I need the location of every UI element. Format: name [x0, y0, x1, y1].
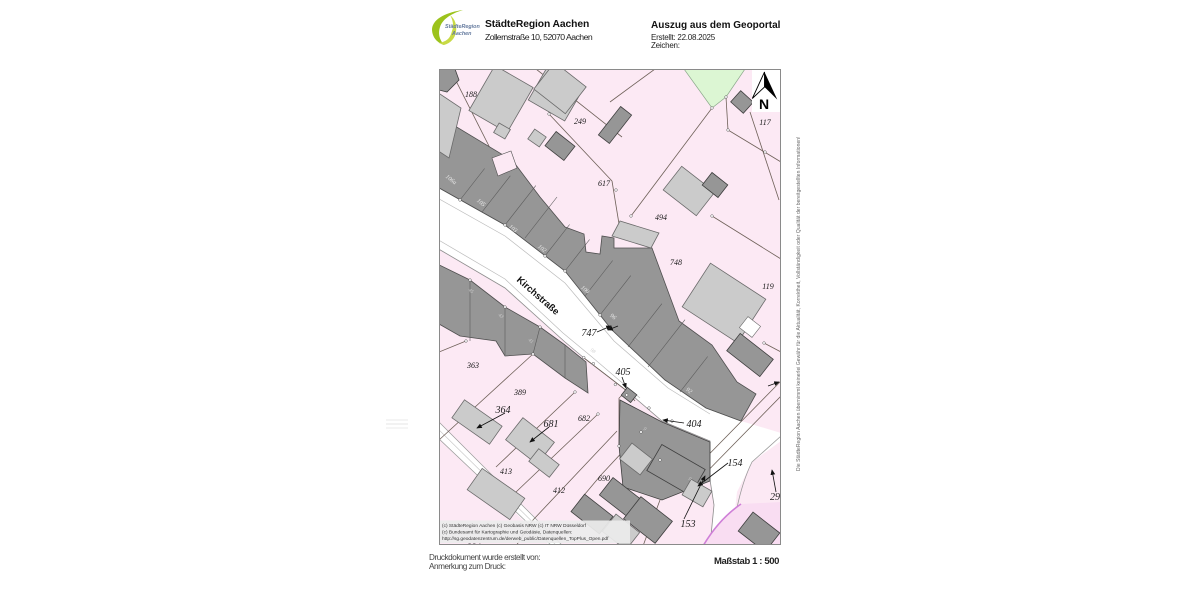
svg-text:617: 617 — [598, 179, 611, 188]
svg-text:(c) Bundesamt für Kartographie: (c) Bundesamt für Kartographie und Geodä… — [442, 530, 572, 536]
svg-text:29: 29 — [770, 492, 780, 503]
svg-text:682: 682 — [578, 414, 590, 423]
svg-text:(c) StädteRegion Aachen (c): (c) StädteRegion Aachen (c) Geobasis NRW… — [442, 523, 587, 529]
svg-text:413: 413 — [500, 467, 512, 476]
svg-text:405: 405 — [616, 367, 631, 378]
svg-text:363: 363 — [466, 361, 479, 370]
svg-text:748: 748 — [670, 258, 682, 267]
svg-text:249: 249 — [574, 117, 586, 126]
svg-text:690: 690 — [598, 474, 610, 483]
svg-text:681: 681 — [544, 419, 559, 430]
svg-text:Aachen: Aachen — [451, 31, 472, 37]
svg-text:119: 119 — [762, 282, 773, 291]
svg-text:747: 747 — [582, 328, 598, 339]
svg-text:412: 412 — [553, 486, 565, 495]
svg-text:StädteRegion: StädteRegion — [445, 24, 480, 30]
svg-text:154: 154 — [728, 458, 743, 469]
svg-text:389: 389 — [513, 388, 526, 397]
svg-text:117: 117 — [759, 118, 771, 127]
svg-text:N: N — [759, 96, 769, 112]
svg-text:188: 188 — [465, 90, 477, 99]
svg-text:494: 494 — [655, 213, 667, 222]
svg-text:153: 153 — [681, 519, 696, 530]
svg-text:http://sg.geodatenzentrum.de/d: http://sg.geodatenzentrum.de/derweb_publ… — [442, 536, 609, 542]
svg-text:364: 364 — [495, 405, 511, 416]
svg-text:404: 404 — [687, 419, 702, 430]
